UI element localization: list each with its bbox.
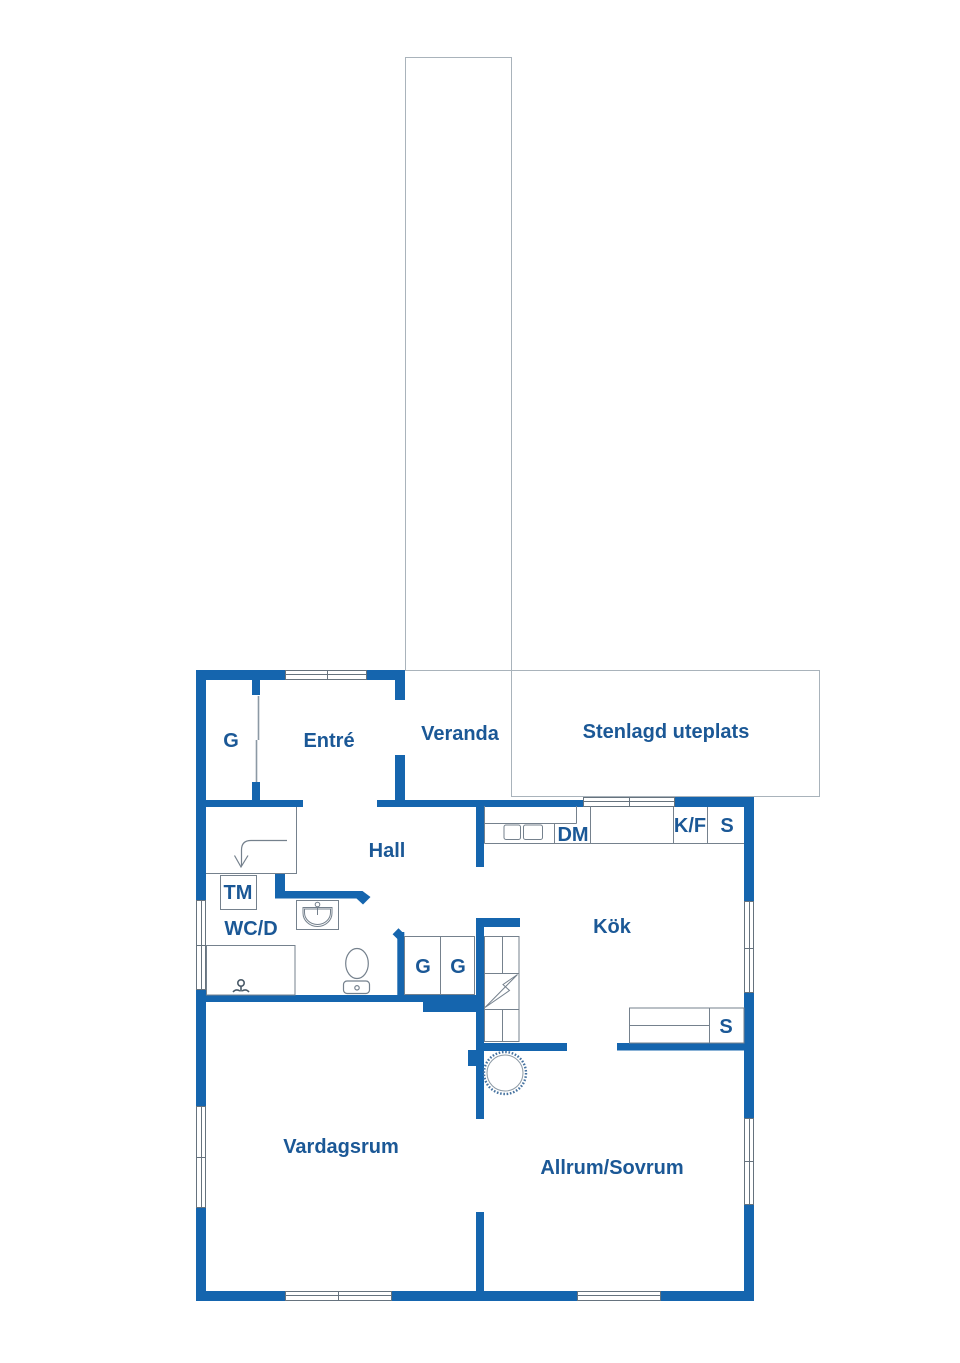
svg-text:Allrum/Sovrum: Allrum/Sovrum [540,1157,683,1179]
svg-text:G: G [415,956,431,978]
svg-text:S: S [719,1016,732,1038]
svg-text:Entré: Entré [303,730,354,752]
svg-text:TM: TM [224,882,253,904]
svg-text:Vardagsrum: Vardagsrum [283,1136,399,1158]
svg-text:G: G [223,730,239,752]
svg-text:DM: DM [557,824,588,846]
svg-text:Veranda: Veranda [421,723,500,745]
svg-text:Hall: Hall [369,840,406,862]
svg-text:Stenlagd uteplats: Stenlagd uteplats [583,721,750,743]
svg-text:WC/D: WC/D [224,918,277,940]
svg-text:K/F: K/F [674,815,706,837]
svg-text:G: G [450,956,466,978]
svg-text:S: S [720,815,733,837]
svg-text:Kök: Kök [593,916,632,938]
